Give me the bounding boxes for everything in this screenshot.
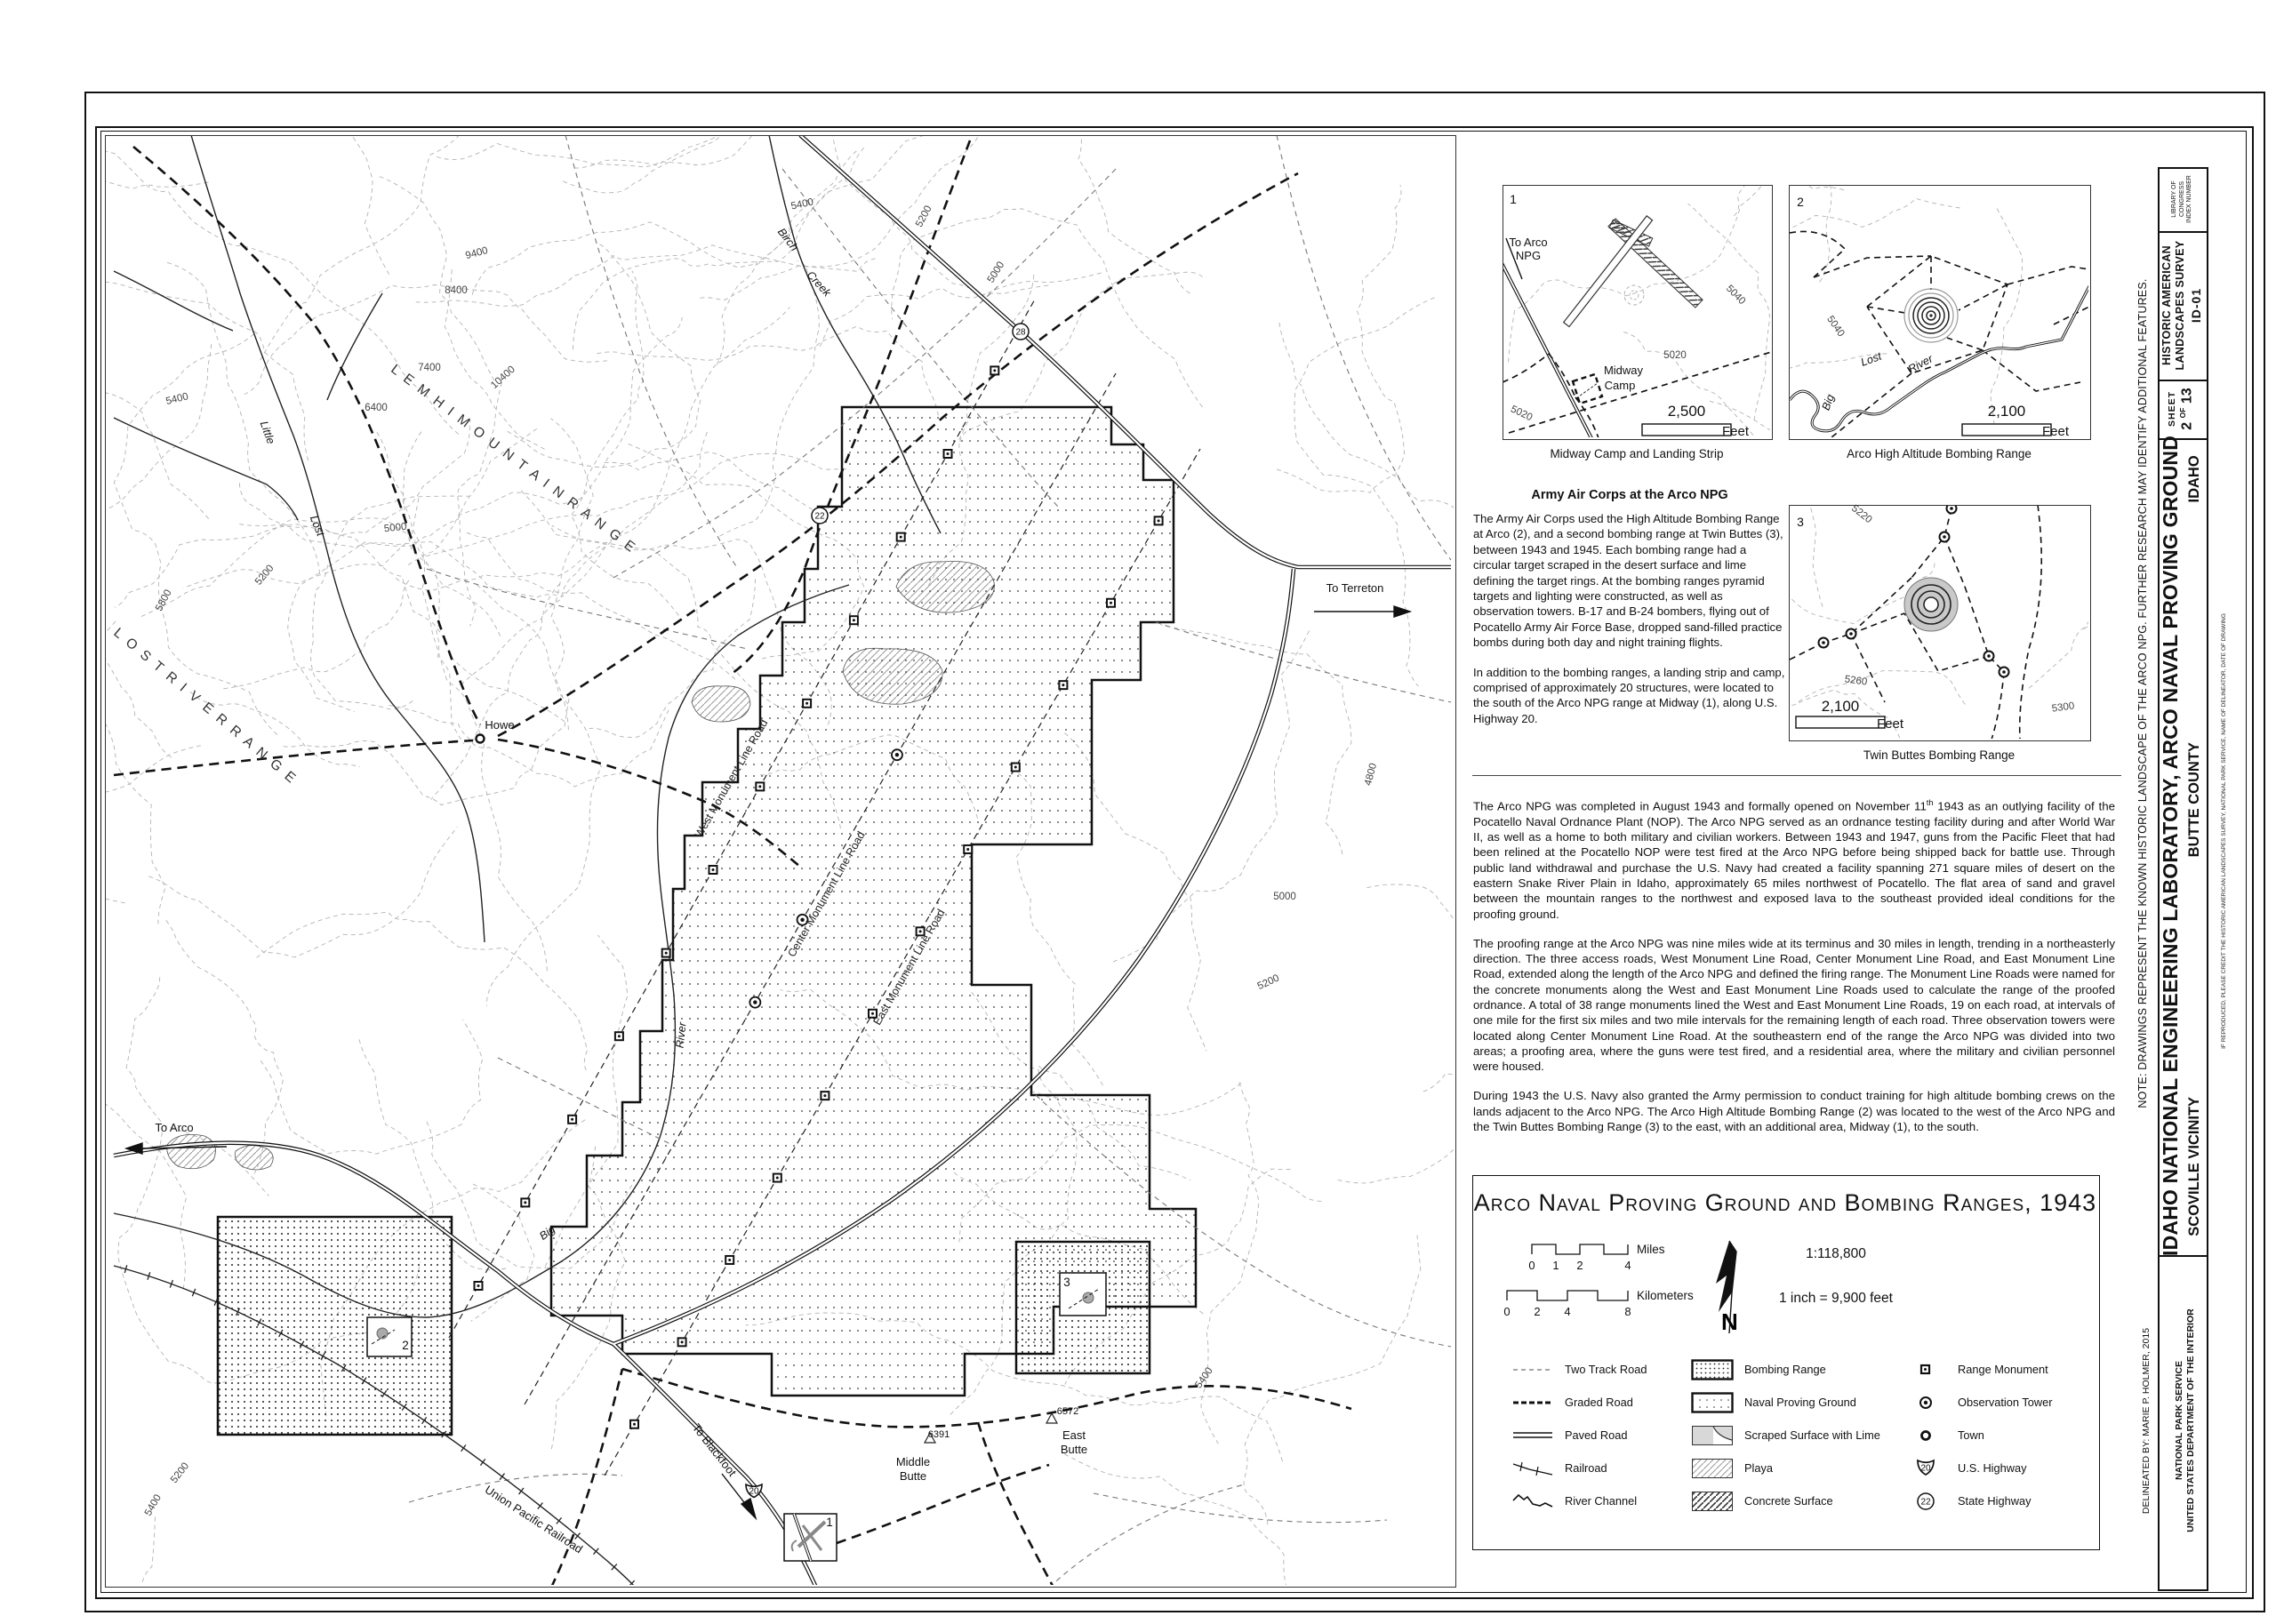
legend-item: Playa <box>1691 1452 1880 1484</box>
legend-label: Bombing Range <box>1744 1363 1826 1376</box>
legend-column-areas: Bombing RangeNaval Proving GroundScraped… <box>1691 1353 1880 1517</box>
reproduction-credit: IF REPRODUCED, PLEASE CREDIT THE HISTORI… <box>2217 667 2230 996</box>
inset-arco-range-caption: Arco High Altitude Bombing Range <box>1789 447 2089 460</box>
legend-item: Observation Tower <box>1904 1386 2052 1419</box>
legend-label: Playa <box>1744 1461 1773 1475</box>
scale-inch: 1 inch = 9,900 feet <box>1743 1291 1929 1307</box>
loc-index-label: LIBRARY OF CONGRESSINDEX NUMBER <box>2163 169 2202 229</box>
legend-item: 20U.S. Highway <box>1904 1452 2052 1484</box>
legend-item: Paved Road <box>1511 1419 1647 1452</box>
legend-item: Town <box>1904 1419 2052 1452</box>
drawing-sheet: 0124Miles0248Kilometers N 94008400740010… <box>0 0 2276 1624</box>
legend-label: Observation Tower <box>1958 1396 2052 1409</box>
legend-item: Concrete Surface <box>1691 1484 1880 1517</box>
legend-label: Concrete Surface <box>1744 1494 1833 1508</box>
legend-label: Graded Road <box>1565 1396 1633 1409</box>
vicinity: SCOVILLE VICINITY <box>2186 1097 2203 1236</box>
npg-legend-symbol <box>1691 1391 1734 1414</box>
agency-credit: NATIONAL PARK SERVICE UNITED STATES DEPA… <box>2168 1259 2203 1582</box>
legend-item: Bombing Range <box>1691 1353 1880 1386</box>
stateshield-legend-symbol: 22 <box>1904 1490 1947 1513</box>
usshield-legend-symbol: 20 <box>1904 1457 1947 1480</box>
river-legend-symbol <box>1511 1490 1554 1513</box>
legend-label: River Channel <box>1565 1494 1637 1508</box>
column-divider <box>1472 775 2121 776</box>
army-air-corps-text: Army Air Corps at the Arco NPG The Army … <box>1473 488 1786 740</box>
legend-item: Scraped Surface with Lime <box>1691 1419 1880 1452</box>
svg-text:22: 22 <box>1920 1497 1931 1507</box>
army-paragraph-1: The Army Air Corps used the High Altitud… <box>1473 511 1786 651</box>
paved-legend-symbol <box>1511 1424 1554 1447</box>
history-text: The Arco NPG was completed in August 194… <box>1473 796 2115 1148</box>
army-paragraph-2: In addition to the bombing ranges, a lan… <box>1473 665 1786 727</box>
inset-midway-caption: Midway Camp and Landing Strip <box>1503 447 1771 460</box>
legend-column-lines: Two Track RoadGraded RoadPaved RoadRailr… <box>1511 1353 1647 1517</box>
legend-label: Scraped Surface with Lime <box>1744 1428 1880 1442</box>
map-frame <box>105 135 1456 1588</box>
town-legend-symbol <box>1904 1424 1947 1447</box>
legend-item: Two Track Road <box>1511 1353 1647 1386</box>
inset-arco-range-frame <box>1789 185 2091 440</box>
scraped-legend-symbol <box>1691 1424 1734 1447</box>
playa-legend-symbol <box>1691 1457 1734 1480</box>
scale-ratio: 1:118,800 <box>1743 1246 1929 1262</box>
legend-item: Naval Proving Ground <box>1691 1386 1880 1419</box>
project-title: IDAHO NATIONAL ENGINEERING LABORATORY, A… <box>2159 439 2203 1252</box>
twotrack-legend-symbol <box>1511 1358 1554 1381</box>
history-paragraph-2: The proofing range at the Arco NPG was n… <box>1473 936 2115 1075</box>
inset-twin-buttes-frame <box>1789 505 2091 741</box>
inset-twin-buttes-caption: Twin Buttes Bombing Range <box>1789 748 2089 762</box>
titleblock-note: NOTE: DRAWINGS REPRESENT THE KNOWN HISTO… <box>2130 135 2155 1252</box>
legend-item: Railroad <box>1511 1452 1647 1484</box>
survey-name: HISTORIC AMERICAN LANDSCAPES SURVEY ID-0… <box>2161 234 2202 377</box>
legend-item: 22State Highway <box>1904 1484 2052 1517</box>
legend-column-points: Range MonumentObservation TowerTown20U.S… <box>1904 1353 2052 1517</box>
legend-item: Range Monument <box>1904 1353 2052 1386</box>
tower-legend-symbol <box>1904 1391 1947 1414</box>
sheet-number: SHEET 2 OF 13 <box>2160 382 2201 436</box>
legend-label: Railroad <box>1565 1461 1607 1475</box>
history-paragraph-3: During 1943 the U.S. Navy also granted t… <box>1473 1088 2115 1134</box>
concrete-legend-symbol <box>1691 1490 1734 1513</box>
graded-legend-symbol <box>1511 1391 1554 1414</box>
state: IDAHO <box>2186 455 2203 502</box>
history-paragraph-1: The Arco NPG was completed in August 194… <box>1473 796 2115 922</box>
legend-label: U.S. Highway <box>1958 1461 2027 1475</box>
bombing-legend-symbol <box>1691 1358 1734 1381</box>
legend-item: River Channel <box>1511 1484 1647 1517</box>
legend-label: Naval Proving Ground <box>1744 1396 1856 1409</box>
delineator-credit: DELINEATED BY: MARIE P. HOLMER, 2015 <box>2137 1325 2155 1516</box>
army-heading: Army Air Corps at the Arco NPG <box>1473 488 1786 502</box>
legend-label: Paved Road <box>1565 1428 1627 1442</box>
legend-label: Range Monument <box>1958 1363 2048 1376</box>
legend-label: Two Track Road <box>1565 1363 1647 1376</box>
svg-text:20: 20 <box>1920 1463 1931 1473</box>
legend-item: Graded Road <box>1511 1386 1647 1419</box>
railroad-legend-symbol <box>1511 1457 1554 1480</box>
map-title: Arco Naval Proving Ground and Bombing Ra… <box>1472 1189 2098 1217</box>
inset-midway-frame <box>1503 185 1773 440</box>
legend-label: Town <box>1958 1428 1984 1442</box>
legend-label: State Highway <box>1958 1494 2032 1508</box>
county: BUTTE COUNTY <box>2186 742 2203 857</box>
monument-legend-symbol <box>1904 1358 1947 1381</box>
